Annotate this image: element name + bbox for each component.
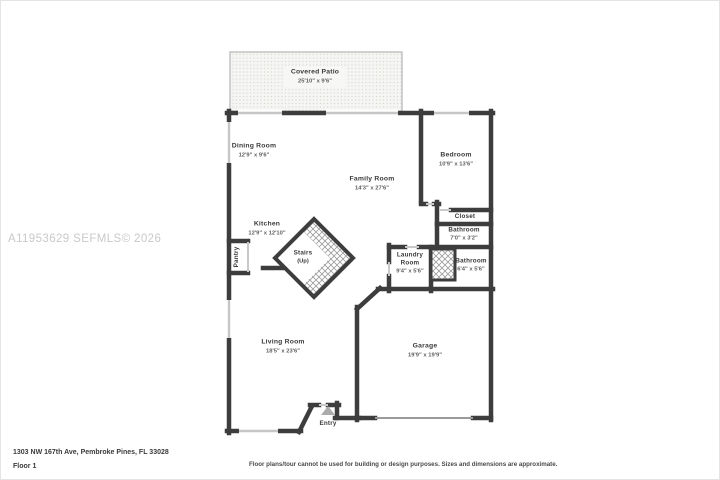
room-name: Stairs bbox=[294, 250, 313, 258]
room-name: Kitchen bbox=[248, 220, 285, 229]
room-label-kitchen: Kitchen 12'9" x 12'10" bbox=[248, 220, 285, 237]
room-dims: 12'9" x 12'10" bbox=[248, 230, 285, 238]
room-label-laundry-room: Laundry Room 9'4" x 5'6" bbox=[387, 252, 433, 277]
room-label-bathroom-lower: Bathroom 6'4" x 5'6" bbox=[455, 258, 486, 275]
room-name: Covered Patio bbox=[291, 68, 339, 77]
room-label-living-room: Living Room 18'5" x 23'6" bbox=[261, 338, 304, 355]
room-name: Garage bbox=[408, 342, 442, 351]
room-dims: (Up) bbox=[294, 259, 313, 267]
room-label-dining-room: Dining Room 12'9" x 9'6" bbox=[232, 142, 277, 159]
room-label-bedroom: Bedroom 10'9" x 13'6" bbox=[439, 151, 473, 168]
room-dims: 6'4" x 5'6" bbox=[455, 267, 486, 275]
room-dims: 12'9" x 9'6" bbox=[232, 152, 277, 160]
room-label-entry: Entry bbox=[319, 420, 336, 428]
room-label-closet: Closet bbox=[455, 213, 475, 221]
floor-plan-canvas: A11953629 SEFMLS© 2026 Covered Patio 25'… bbox=[0, 0, 720, 480]
property-address: 1303 NW 167th Ave, Pembroke Pines, FL 33… bbox=[13, 449, 169, 456]
room-dims: 7'0" x 3'2" bbox=[448, 236, 479, 244]
room-name: Family Room bbox=[350, 175, 395, 184]
disclaimer-text: Floor plans/tour cannot be used for buil… bbox=[249, 461, 557, 468]
stairs-shape bbox=[275, 219, 353, 297]
room-label-covered-patio: Covered Patio 25'10" x 9'6" bbox=[284, 66, 346, 87]
room-name: Closet bbox=[455, 213, 475, 221]
room-label-pantry: Pantry bbox=[233, 247, 241, 268]
room-dims: 14'3" x 27'6" bbox=[350, 185, 395, 193]
room-dims: 10'9" x 13'6" bbox=[439, 161, 473, 169]
room-name: Pantry bbox=[233, 247, 241, 268]
room-name: Bedroom bbox=[439, 151, 473, 160]
room-dims: 18'5" x 23'6" bbox=[261, 348, 304, 356]
room-dims: 9'4" x 5'6" bbox=[387, 269, 433, 277]
room-dims: 25'10" x 9'6" bbox=[291, 78, 339, 86]
entry-triangle-icon bbox=[321, 406, 335, 415]
room-label-garage: Garage 19'9" x 19'9" bbox=[408, 342, 442, 359]
room-label-stairs: Stairs (Up) bbox=[294, 250, 313, 267]
watermark-text: A11953629 SEFMLS© 2026 bbox=[8, 233, 161, 245]
floor-label: Floor 1 bbox=[13, 463, 36, 470]
room-label-family-room: Family Room 14'3" x 27'6" bbox=[350, 175, 395, 192]
room-name: Bathroom bbox=[448, 227, 479, 235]
room-name: Living Room bbox=[261, 338, 304, 347]
room-label-bathroom-upper: Bathroom 7'0" x 3'2" bbox=[448, 227, 479, 244]
room-name: Dining Room bbox=[232, 142, 277, 151]
room-dims: 19'9" x 19'9" bbox=[408, 352, 442, 360]
room-name: Laundry Room bbox=[387, 252, 433, 268]
room-name: Bathroom bbox=[455, 258, 486, 266]
room-name: Entry bbox=[319, 420, 336, 428]
shower-stall bbox=[431, 249, 455, 280]
